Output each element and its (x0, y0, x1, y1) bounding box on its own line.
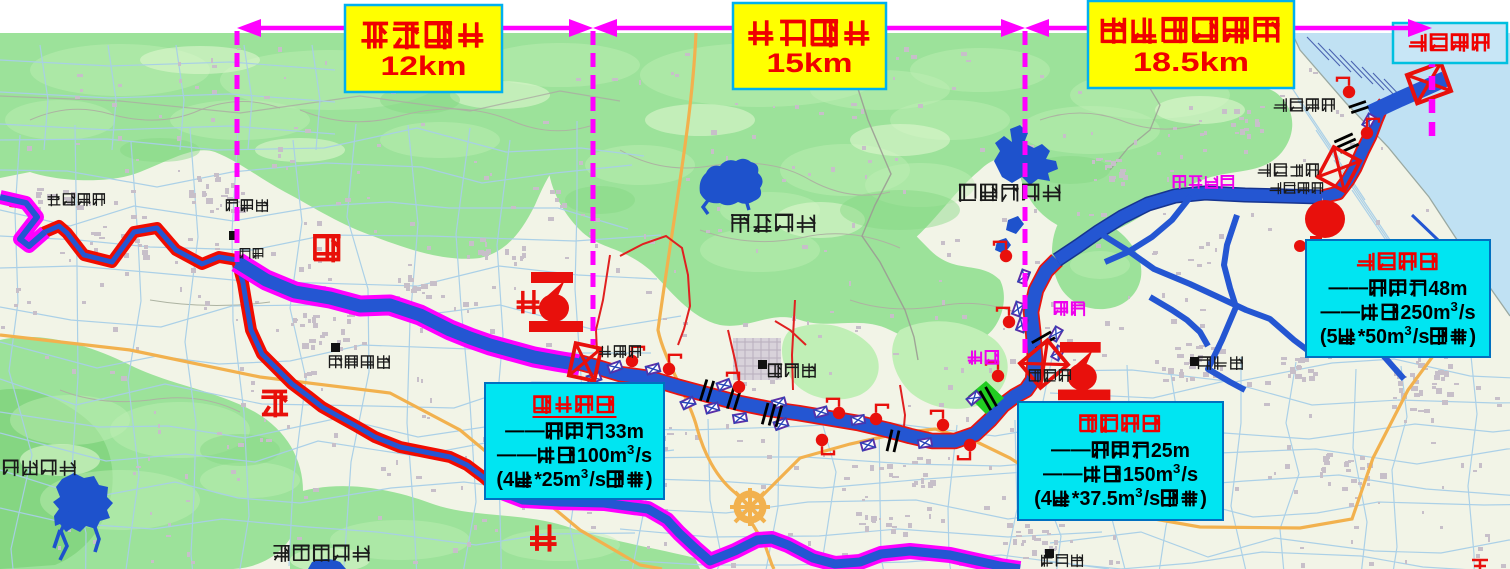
svg-text:15km: 15km (767, 48, 853, 78)
svg-text:/s: /s (1459, 302, 1476, 324)
svg-text:150m: 150m (1123, 464, 1173, 486)
svg-text:33m: 33m (605, 421, 644, 443)
svg-text:/s: /s (1144, 488, 1161, 510)
svg-text:(4: (4 (1034, 488, 1053, 510)
svg-text:*37.5m: *37.5m (1072, 488, 1135, 510)
svg-text:3: 3 (581, 466, 588, 481)
svg-text:100m: 100m (577, 445, 627, 467)
svg-text:3: 3 (1173, 461, 1180, 476)
svg-text:3: 3 (627, 442, 634, 457)
svg-text:/s: /s (1413, 326, 1430, 348)
svg-text:12km: 12km (381, 51, 467, 81)
svg-text:3: 3 (1135, 485, 1142, 500)
svg-text:): ) (1200, 488, 1207, 510)
svg-text:/s: /s (1181, 464, 1198, 486)
svg-text:250m: 250m (1401, 302, 1451, 324)
svg-text:): ) (646, 469, 653, 491)
svg-text:25m: 25m (1151, 440, 1190, 462)
svg-text:3: 3 (1451, 299, 1458, 314)
svg-text:48m: 48m (1429, 278, 1468, 300)
svg-text:*25m: *25m (534, 469, 581, 491)
svg-text:/s: /s (589, 469, 606, 491)
svg-text:*50m: *50m (1358, 326, 1405, 348)
svg-text:/s: /s (635, 445, 652, 467)
svg-text:): ) (1469, 326, 1476, 348)
svg-text:(4: (4 (496, 469, 515, 491)
svg-text:18.5km: 18.5km (1133, 47, 1249, 77)
svg-text:3: 3 (1404, 323, 1411, 338)
svg-text:(5: (5 (1320, 326, 1338, 348)
